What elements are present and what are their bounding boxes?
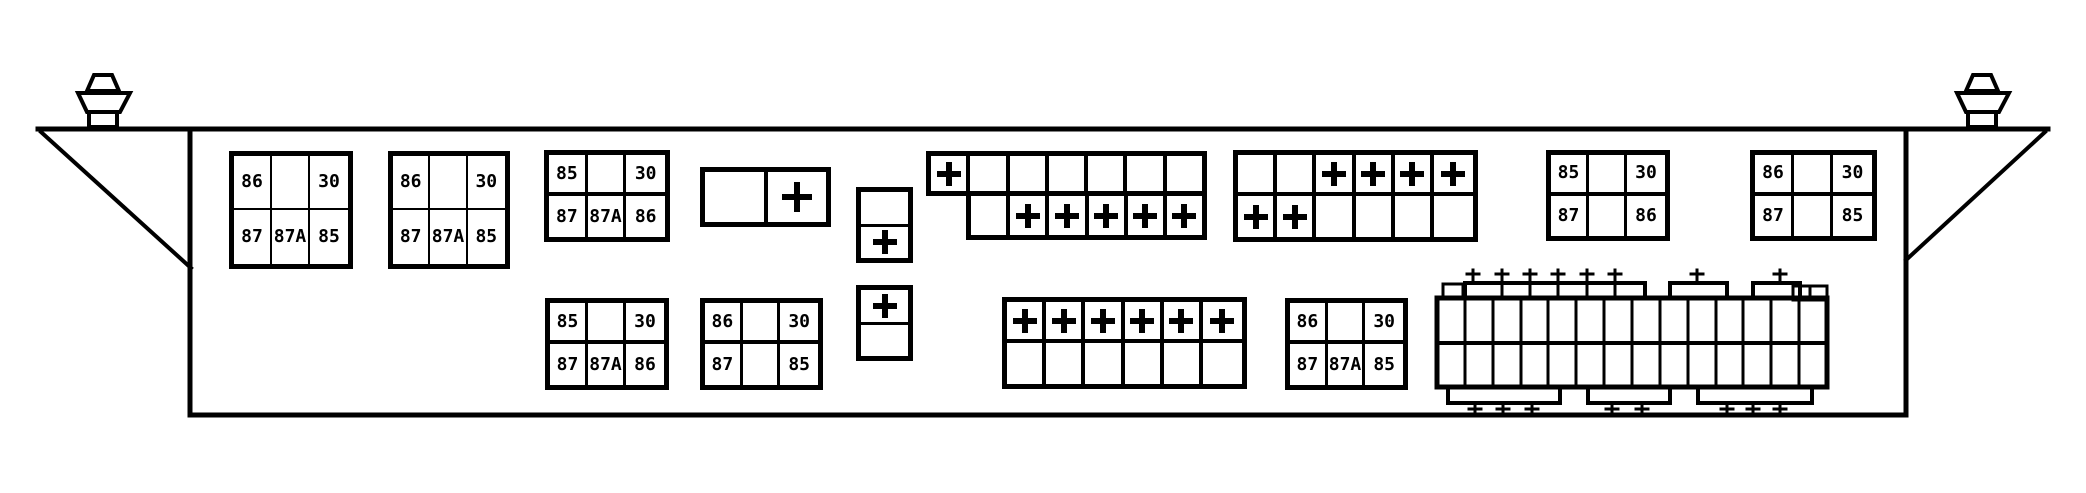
relay-cell (743, 344, 781, 385)
terminal-cell (1203, 343, 1242, 384)
fuse-relay-box-diagram: 86 30 87 87A 85 86 30 87 87A 85 85 30 87… (0, 0, 2086, 493)
plus-terminal-icon (1400, 162, 1424, 186)
pin-label: 86 (400, 173, 422, 191)
pin-label: 87 (557, 356, 579, 374)
relay-cell: 86 (1755, 155, 1794, 196)
relay-cell: 87 (550, 344, 588, 385)
pin-label: 87A (589, 356, 622, 374)
plus-terminal-icon (1016, 204, 1040, 228)
plus-terminal-icon (1244, 205, 1268, 229)
plus-terminal-icon (1130, 309, 1154, 333)
relay-cell (1794, 155, 1833, 196)
pin-label: 85 (1373, 356, 1395, 374)
terminal-cell (1127, 156, 1166, 191)
pin-label: 85 (557, 313, 579, 331)
multi-pin-connector (1437, 270, 1827, 415)
relay-socket-top-middle: 85 30 87 87A 86 (544, 150, 670, 242)
pin-label: 85 (475, 228, 497, 246)
relay-cell: 30 (1833, 155, 1872, 196)
plus-terminal-icon (1210, 309, 1234, 333)
relay-cell: 87 (1755, 196, 1794, 237)
relay-cell: 30 (626, 155, 665, 196)
terminal-cell (861, 290, 908, 325)
pin-label: 87A (1329, 356, 1362, 374)
terminal-cell (1277, 155, 1316, 196)
relay-cell: 86 (1627, 196, 1665, 237)
terminal-cell (1395, 155, 1434, 196)
relay-cell: 30 (626, 303, 664, 344)
pin-label: 30 (318, 173, 340, 191)
right-bracket-flange (1906, 132, 2045, 260)
terminal-cell (1128, 196, 1167, 235)
relay-cell: 85 (310, 210, 348, 264)
pin-label: 87 (556, 208, 578, 226)
pin-label: 86 (711, 313, 733, 331)
relay-cell: 87 (234, 210, 272, 264)
relay-cell (272, 156, 310, 210)
relay-cell: 30 (1365, 303, 1403, 344)
relay-cell: 87A (588, 344, 626, 385)
pin-label: 87 (1558, 207, 1580, 225)
pin-label: 85 (556, 165, 578, 183)
relay-cell: 85 (468, 210, 505, 264)
terminal-cell (1167, 156, 1202, 191)
relay-socket-top-left-2: 86 30 87 87A 85 (388, 151, 510, 269)
terminal-cell (1238, 155, 1277, 196)
terminal-cell (971, 196, 1010, 235)
terminal-strip-bottom (1002, 297, 1247, 389)
relay-cell: 86 (705, 303, 743, 344)
terminal-cell (1089, 196, 1128, 235)
pin-label: 30 (1373, 313, 1395, 331)
plus-terminal-icon (1055, 204, 1079, 228)
terminal-strip-top-right (1233, 150, 1478, 242)
pin-label: 86 (1296, 313, 1318, 331)
relay-cell: 30 (1627, 155, 1665, 196)
left-mounting-bolt-icon (78, 75, 130, 127)
terminal-cell (1007, 343, 1046, 384)
pin-label: 86 (635, 208, 657, 226)
relay-cell: 85 (1551, 155, 1589, 196)
relay-cell: 30 (468, 156, 505, 210)
plus-terminal-icon (937, 162, 961, 186)
relay-cell: 87A (430, 210, 467, 264)
terminal-cell (1277, 196, 1316, 237)
plus-terminal-icon (1322, 162, 1346, 186)
pin-label: 87A (432, 228, 465, 246)
relay-cell: 86 (234, 156, 272, 210)
pin-label: 87A (274, 228, 307, 246)
terminal-cell (1238, 196, 1277, 237)
relay-socket-top-right-1: 85 30 87 86 (1546, 150, 1670, 241)
terminal-cell (1167, 196, 1202, 235)
relay-cell: 86 (626, 196, 665, 237)
plus-terminal-icon (1013, 309, 1037, 333)
relay-cell: 86 (1290, 303, 1328, 344)
relay-cell: 30 (310, 156, 348, 210)
terminal-cell (1010, 196, 1049, 235)
terminal-cell (1434, 196, 1473, 237)
relay-cell: 85 (1833, 196, 1872, 237)
terminal-cell (970, 156, 1009, 191)
pin-label: 85 (318, 228, 340, 246)
terminal-strip-top-left-row2 (966, 191, 1207, 240)
relay-cell (743, 303, 781, 344)
pin-label: 30 (635, 165, 657, 183)
terminal-pair-vertical-top (856, 187, 913, 263)
relay-cell: 86 (393, 156, 430, 210)
terminal-cell (1356, 155, 1395, 196)
pin-label: 86 (1635, 207, 1657, 225)
terminal-pair-vertical-bottom (856, 285, 913, 361)
terminal-cell (1010, 156, 1049, 191)
relay-cell: 85 (1365, 344, 1403, 385)
plus-terminal-icon (873, 230, 897, 254)
relay-socket-top-left-1: 86 30 87 87A 85 (229, 151, 353, 269)
right-mounting-bolt-icon (1957, 75, 2009, 127)
relay-cell (430, 156, 467, 210)
relay-cell: 85 (549, 155, 588, 196)
relay-cell: 85 (550, 303, 588, 344)
terminal-cell (1395, 196, 1434, 237)
pin-label: 86 (241, 173, 263, 191)
pin-label: 87 (1296, 356, 1318, 374)
terminal-cell (1164, 343, 1203, 384)
pin-label: 85 (1842, 207, 1864, 225)
terminal-cell (861, 227, 908, 259)
pin-label: 87A (589, 208, 622, 226)
pin-label: 30 (1635, 164, 1657, 182)
terminal-cell (1046, 302, 1085, 343)
relay-cell: 87 (549, 196, 588, 237)
terminal-cell (861, 325, 908, 357)
relay-socket-bottom-3: 86 30 87 87A 85 (1285, 298, 1408, 390)
plus-terminal-icon (782, 182, 812, 212)
terminal-cell (931, 156, 970, 191)
plus-terminal-icon (1052, 309, 1076, 333)
terminal-cell (1316, 196, 1355, 237)
plus-terminal-icon (1441, 162, 1465, 186)
left-bracket-flange (41, 132, 191, 268)
terminal-pair-horizontal (700, 167, 831, 227)
pin-label: 85 (788, 356, 810, 374)
pin-label: 30 (475, 173, 497, 191)
pin-label: 87 (241, 228, 263, 246)
terminal-cell (1164, 302, 1203, 343)
relay-socket-top-right-2: 86 30 87 85 (1750, 150, 1877, 241)
pin-label: 87 (400, 228, 422, 246)
terminal-cell (1203, 302, 1242, 343)
relay-cell: 30 (780, 303, 818, 344)
plus-terminal-icon (873, 294, 897, 318)
terminal-cell (1088, 156, 1127, 191)
relay-cell: 85 (780, 344, 818, 385)
terminal-cell (1125, 343, 1164, 384)
relay-socket-bottom-1: 85 30 87 87A 86 (545, 298, 669, 390)
plus-terminal-icon (1172, 204, 1196, 228)
relay-cell: 86 (626, 344, 664, 385)
relay-cell (1589, 196, 1627, 237)
terminal-cell (768, 172, 827, 222)
relay-cell (1589, 155, 1627, 196)
plus-terminal-icon (1361, 162, 1385, 186)
plus-terminal-icon (1169, 309, 1193, 333)
relay-cell: 87 (1290, 344, 1328, 385)
terminal-cell (1356, 196, 1395, 237)
relay-cell: 87A (272, 210, 310, 264)
relay-cell: 87A (1328, 344, 1366, 385)
terminal-cell (1125, 302, 1164, 343)
terminal-cell (1085, 343, 1124, 384)
terminal-cell (1434, 155, 1473, 196)
plus-terminal-icon (1133, 204, 1157, 228)
relay-cell: 87 (393, 210, 430, 264)
relay-cell (588, 155, 627, 196)
terminal-cell (1316, 155, 1355, 196)
pin-label: 85 (1558, 164, 1580, 182)
plus-terminal-icon (1283, 205, 1307, 229)
pin-label: 30 (634, 313, 656, 331)
terminal-strip-top-left-row1 (926, 151, 1207, 196)
relay-socket-bottom-2: 86 30 87 85 (700, 298, 823, 390)
pin-label: 30 (788, 313, 810, 331)
pin-label: 86 (634, 356, 656, 374)
terminal-cell (705, 172, 768, 222)
relay-cell: 87 (705, 344, 743, 385)
terminal-cell (1049, 156, 1088, 191)
terminal-cell (1085, 302, 1124, 343)
plus-terminal-icon (1094, 204, 1118, 228)
relay-cell: 87 (1551, 196, 1589, 237)
pin-label: 30 (1842, 164, 1864, 182)
pin-label: 87 (711, 356, 733, 374)
relay-cell (588, 303, 626, 344)
terminal-cell (1046, 343, 1085, 384)
terminal-cell (1049, 196, 1088, 235)
pin-label: 86 (1762, 164, 1784, 182)
relay-cell (1328, 303, 1366, 344)
relay-cell: 87A (588, 196, 627, 237)
plus-terminal-icon (1091, 309, 1115, 333)
terminal-cell (1007, 302, 1046, 343)
terminal-cell (861, 192, 908, 227)
pin-label: 87 (1762, 207, 1784, 225)
relay-cell (1794, 196, 1833, 237)
